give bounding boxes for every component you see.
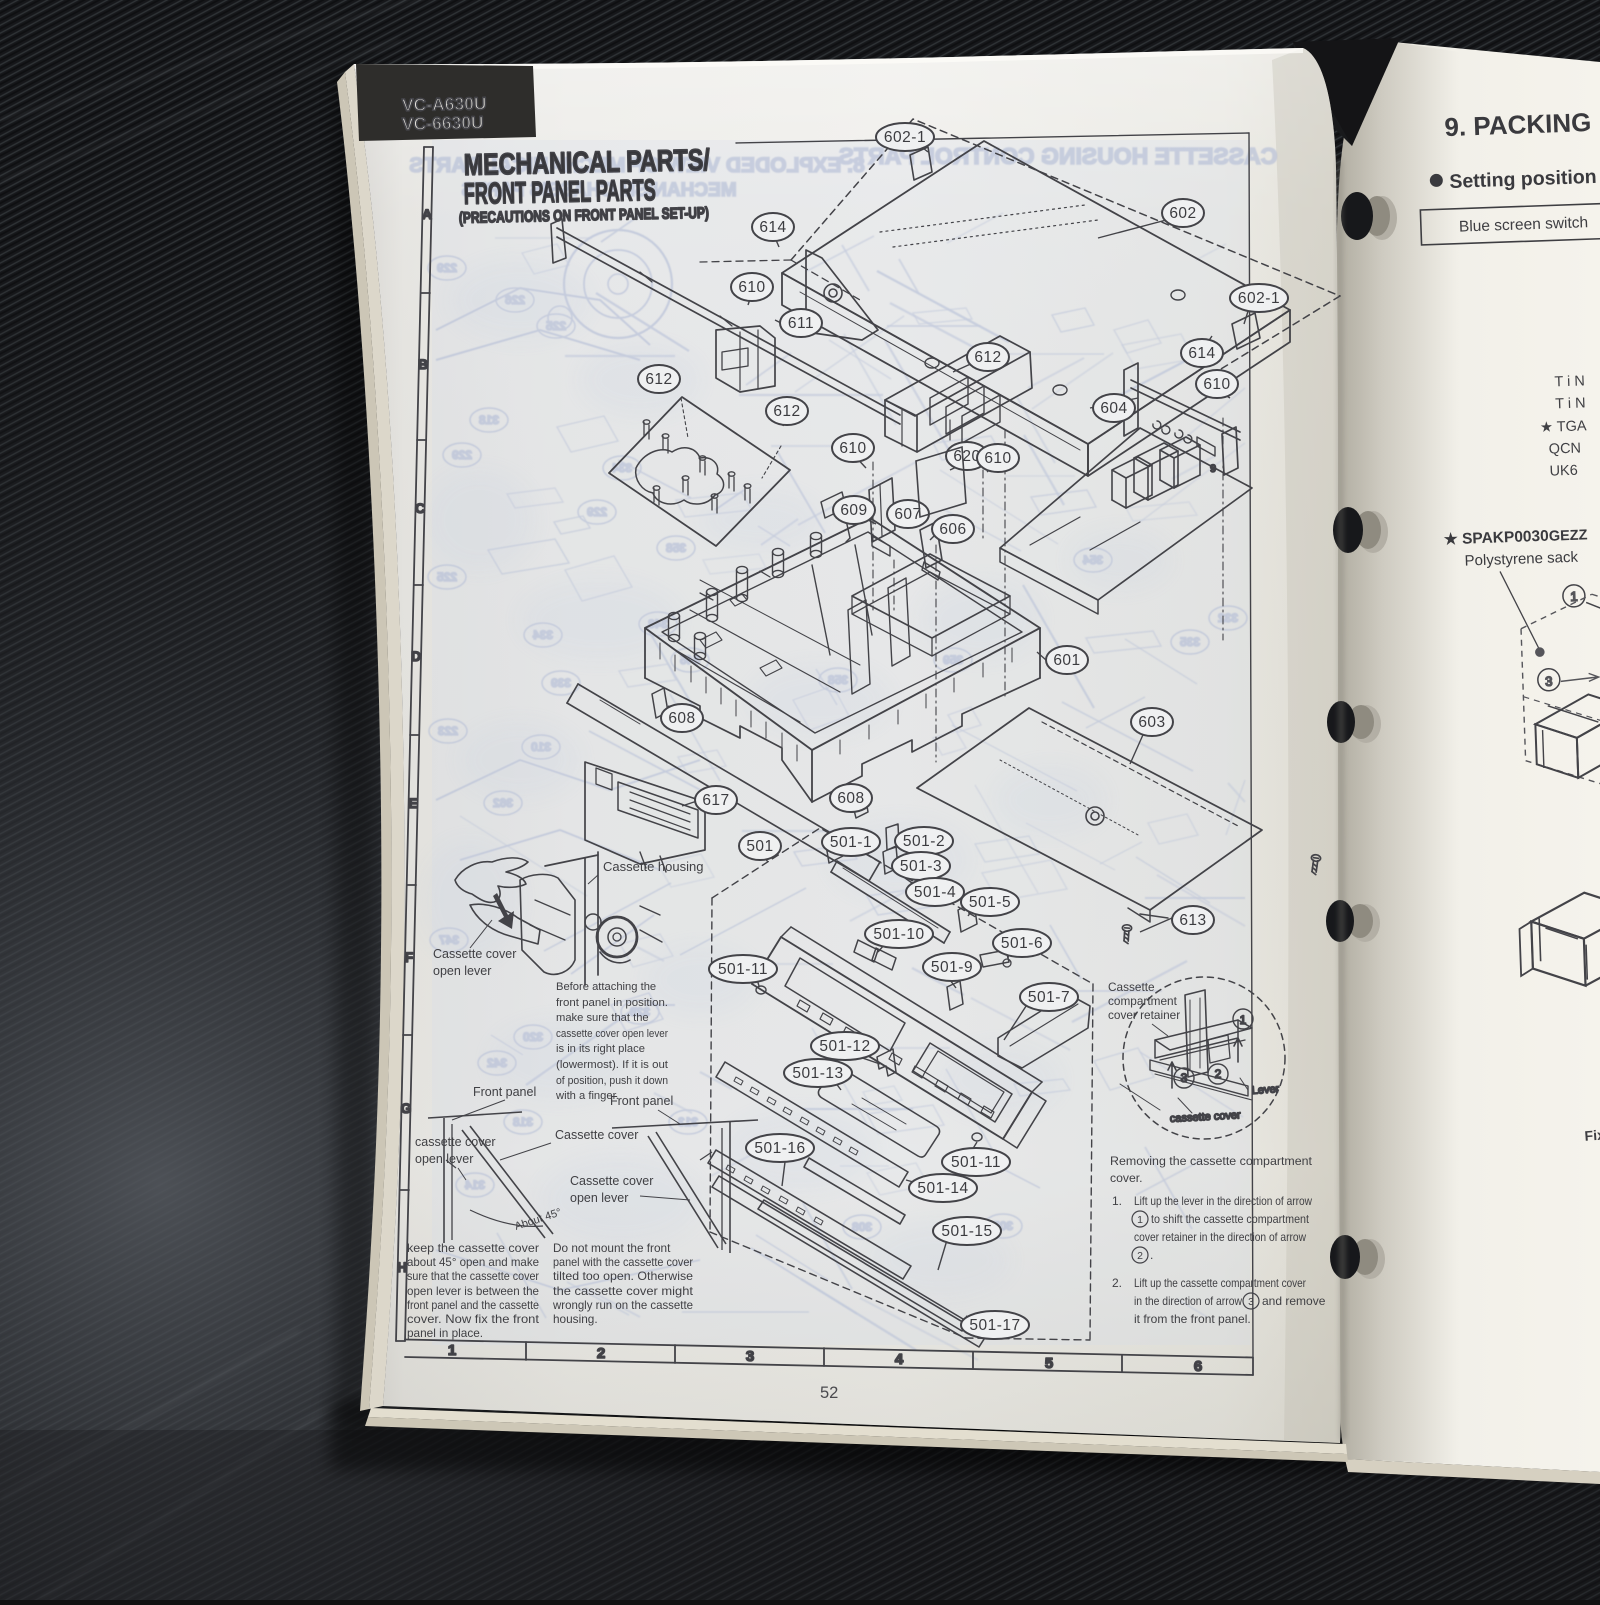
svg-text:339: 339 xyxy=(551,676,571,690)
svg-text:★ TGA: ★ TGA xyxy=(1540,418,1587,436)
svg-text:501-3: 501-3 xyxy=(900,858,942,875)
svg-text:314: 314 xyxy=(465,1178,485,1192)
svg-text:2: 2 xyxy=(1215,1067,1222,1081)
svg-text:501-16: 501-16 xyxy=(754,1140,805,1157)
svg-text:602-1: 602-1 xyxy=(1238,290,1280,307)
svg-text:1: 1 xyxy=(1137,1214,1143,1226)
svg-text:225: 225 xyxy=(437,570,457,584)
svg-text:in the direction of arrow: in the direction of arrow xyxy=(1134,1294,1242,1308)
svg-text:358: 358 xyxy=(666,541,686,555)
svg-text:359: 359 xyxy=(943,653,963,667)
svg-text:G: G xyxy=(401,1101,412,1116)
svg-text:610: 610 xyxy=(738,279,765,296)
svg-text:cover retainer in the directio: cover retainer in the direction of arrow xyxy=(1134,1230,1306,1244)
svg-text:609: 609 xyxy=(840,502,867,519)
svg-text:501-17: 501-17 xyxy=(969,1317,1020,1334)
svg-text:cassette cover: cassette cover xyxy=(415,1135,496,1149)
svg-text:229: 229 xyxy=(452,448,472,462)
svg-text:the cassette cover might: the cassette cover might xyxy=(553,1284,694,1298)
svg-text:501-11: 501-11 xyxy=(951,1154,1001,1171)
svg-text:1: 1 xyxy=(448,1342,456,1359)
svg-text:335: 335 xyxy=(1180,635,1200,649)
svg-text:Cassette cover: Cassette cover xyxy=(570,1174,653,1188)
svg-text:cover retainer: cover retainer xyxy=(1108,1008,1180,1022)
svg-text:501-15: 501-15 xyxy=(941,1223,992,1240)
svg-text:362: 362 xyxy=(493,796,513,810)
svg-text:501-7: 501-7 xyxy=(1028,989,1070,1006)
svg-text:1: 1 xyxy=(1570,589,1578,604)
svg-text:compartment: compartment xyxy=(1108,994,1178,1008)
svg-text:H: H xyxy=(397,1260,407,1275)
svg-text:to shift the cassette compartm: to shift the cassette compartment xyxy=(1151,1212,1310,1226)
svg-text:front panel in position.: front panel in position. xyxy=(556,997,668,1009)
svg-text:501-12: 501-12 xyxy=(819,1038,870,1055)
svg-text:Cassette cover: Cassette cover xyxy=(555,1128,638,1142)
svg-text:is in its right place: is in its right place xyxy=(556,1043,645,1055)
svg-text:FRONT PANEL PARTS: FRONT PANEL PARTS xyxy=(463,174,656,211)
svg-text:Do not mount the front: Do not mount the front xyxy=(553,1241,671,1255)
svg-text:1.: 1. xyxy=(1112,1194,1122,1208)
svg-text:614: 614 xyxy=(759,219,786,236)
svg-text:320: 320 xyxy=(523,1030,543,1044)
svg-text:501: 501 xyxy=(746,838,773,855)
svg-text:F: F xyxy=(405,950,413,965)
svg-text:610: 610 xyxy=(1203,376,1230,393)
svg-text:Front panel: Front panel xyxy=(473,1085,536,1099)
svg-text:2.: 2. xyxy=(1112,1276,1122,1290)
svg-text:(lowermost). If it is out: (lowermost). If it is out xyxy=(556,1059,669,1071)
svg-text:T i N: T i N xyxy=(1554,373,1585,390)
svg-text:panel with the cassette cover: panel with the cassette cover xyxy=(553,1255,693,1269)
svg-text:Removing the cassette compartm: Removing the cassette compartment xyxy=(1110,1154,1313,1168)
svg-text:UK6: UK6 xyxy=(1549,463,1578,480)
svg-text:cover.: cover. xyxy=(1110,1171,1143,1185)
svg-text:501-5: 501-5 xyxy=(969,894,1011,911)
svg-text:sure that the cassette cover: sure that the cassette cover xyxy=(407,1269,539,1283)
svg-text:Lift up the lever in the direc: Lift up the lever in the direction of ar… xyxy=(1134,1194,1312,1208)
svg-text:603: 603 xyxy=(1138,714,1165,731)
svg-text:tilted too open. Otherwise: tilted too open. Otherwise xyxy=(553,1269,693,1283)
svg-text:602-1: 602-1 xyxy=(884,129,926,146)
svg-text:610: 610 xyxy=(984,450,1011,467)
svg-text:Cassette: Cassette xyxy=(1108,980,1155,994)
svg-text:501-2: 501-2 xyxy=(903,833,945,850)
svg-text:E: E xyxy=(408,796,417,811)
svg-text:.: . xyxy=(1150,1248,1153,1262)
svg-text:GEZZ: GEZZ xyxy=(1549,527,1588,544)
svg-text:602: 602 xyxy=(1169,205,1196,222)
svg-text:1: 1 xyxy=(1240,1013,1247,1027)
svg-text:and remove: and remove xyxy=(1262,1294,1326,1308)
svg-text:3: 3 xyxy=(1248,1296,1254,1308)
svg-text:about 45° open and make: about 45° open and make xyxy=(407,1255,539,1269)
svg-text:354: 354 xyxy=(1083,553,1103,567)
svg-text:6: 6 xyxy=(1194,1358,1202,1375)
svg-text:it from the front panel.: it from the front panel. xyxy=(1134,1312,1251,1326)
svg-text:3: 3 xyxy=(1181,1071,1188,1085)
svg-text:347: 347 xyxy=(439,933,459,947)
svg-text:501-13: 501-13 xyxy=(792,1065,843,1082)
svg-text:9. PACKING: 9. PACKING xyxy=(1444,107,1592,142)
svg-text:3: 3 xyxy=(1545,674,1553,689)
svg-text:607: 607 xyxy=(894,506,921,523)
svg-text:open lever: open lever xyxy=(433,964,491,978)
svg-text:4: 4 xyxy=(895,1351,904,1368)
svg-text:613: 613 xyxy=(1179,912,1206,929)
svg-text:Front panel: Front panel xyxy=(610,1094,673,1108)
svg-text:310: 310 xyxy=(531,740,551,754)
svg-text:Cassette housing: Cassette housing xyxy=(603,859,703,874)
svg-text:501-1: 501-1 xyxy=(830,834,872,851)
svg-text:52: 52 xyxy=(820,1384,838,1402)
svg-text:334: 334 xyxy=(533,628,553,642)
svg-text:VC-6630U: VC-6630U xyxy=(402,112,484,134)
svg-text:wrongly run on the cassette: wrongly run on the cassette xyxy=(552,1298,693,1312)
svg-text:cassette cover open lever: cassette cover open lever xyxy=(556,1028,668,1040)
svg-text:229: 229 xyxy=(587,505,607,519)
svg-text:601: 601 xyxy=(1053,652,1080,669)
svg-text:QCN: QCN xyxy=(1549,441,1582,458)
svg-text:318: 318 xyxy=(513,1115,533,1129)
svg-text:Lever: Lever xyxy=(1251,1083,1280,1097)
svg-text:612: 612 xyxy=(773,403,800,420)
svg-text:610: 610 xyxy=(839,440,866,457)
svg-text:501-14: 501-14 xyxy=(917,1180,968,1197)
svg-text:B: B xyxy=(418,357,428,372)
svg-text:614: 614 xyxy=(1188,345,1215,362)
svg-text:604: 604 xyxy=(1100,400,1127,417)
svg-text:Lift up the cassette compartme: Lift up the cassette compartment cover xyxy=(1134,1276,1306,1290)
svg-text:313: 313 xyxy=(678,1115,698,1129)
svg-text:501-9: 501-9 xyxy=(931,959,973,976)
svg-text:cover. Now fix the front: cover. Now fix the front xyxy=(407,1312,540,1326)
svg-text:611: 611 xyxy=(788,315,814,332)
svg-text:501-10: 501-10 xyxy=(873,926,924,943)
svg-text:225: 225 xyxy=(546,319,566,333)
svg-text:501-11: 501-11 xyxy=(718,961,768,978)
svg-text:617: 617 xyxy=(702,792,729,809)
svg-text:Fix with: Fix with xyxy=(1584,1124,1600,1144)
svg-text:2: 2 xyxy=(597,1345,605,1362)
svg-text:223: 223 xyxy=(438,724,458,738)
svg-text:panel in place.: panel in place. xyxy=(407,1326,483,1340)
svg-text:Cassette cover: Cassette cover xyxy=(433,947,516,961)
svg-text:open lever is between the: open lever is between the xyxy=(407,1284,539,1298)
svg-text:3: 3 xyxy=(746,1348,754,1365)
svg-text:D: D xyxy=(411,649,421,664)
svg-text:612: 612 xyxy=(645,371,672,388)
svg-text:342: 342 xyxy=(487,1056,507,1070)
svg-text:T i N: T i N xyxy=(1555,395,1586,412)
svg-text:C: C xyxy=(415,501,425,516)
svg-text:front panel and the cassette: front panel and the cassette xyxy=(407,1298,539,1312)
svg-text:606: 606 xyxy=(939,521,966,538)
svg-text:229: 229 xyxy=(437,261,457,275)
svg-text:612: 612 xyxy=(974,349,1001,366)
svg-text:5: 5 xyxy=(1045,1355,1053,1372)
svg-text:open lever: open lever xyxy=(570,1191,628,1205)
svg-text:Before attaching the: Before attaching the xyxy=(556,981,656,993)
svg-text:keep the cassette cover: keep the cassette cover xyxy=(407,1241,539,1255)
svg-text:A: A xyxy=(422,207,432,222)
svg-text:make sure that the: make sure that the xyxy=(556,1012,649,1024)
svg-text:open lever: open lever xyxy=(415,1152,473,1166)
svg-text:332: 332 xyxy=(1218,611,1238,625)
svg-text:housing.: housing. xyxy=(553,1312,598,1326)
svg-text:of position, push it down: of position, push it down xyxy=(556,1075,668,1087)
svg-text:2: 2 xyxy=(1137,1250,1143,1262)
svg-text:318: 318 xyxy=(479,413,499,427)
svg-text:501-4: 501-4 xyxy=(914,884,956,901)
svg-text:501-6: 501-6 xyxy=(1001,935,1043,952)
svg-text:358: 358 xyxy=(828,673,848,687)
svg-text:608: 608 xyxy=(668,710,695,727)
svg-text:608: 608 xyxy=(837,790,864,807)
